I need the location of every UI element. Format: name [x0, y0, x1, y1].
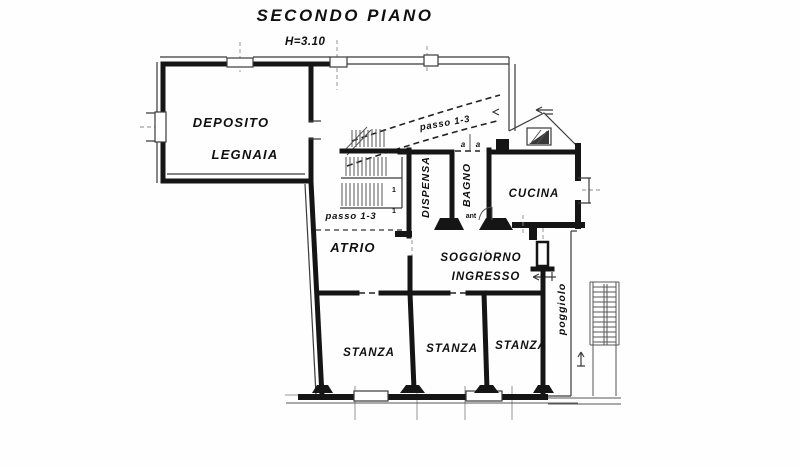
label-passo-lower: passo 1-3	[324, 211, 376, 222]
label-stanza-2: STANZA	[426, 343, 478, 355]
height-note: H=3.10	[285, 36, 326, 48]
stair-step-mark-1: 1	[392, 187, 396, 194]
kitchen-bay-roof	[509, 113, 578, 147]
label-bagno: BAGNO	[461, 163, 473, 207]
label-stanza-3: STANZA	[495, 340, 547, 352]
label-poggiolo: poggiolo	[556, 283, 568, 336]
label-atrio: ATRIO	[329, 240, 375, 255]
label-legnaia: LEGNAIA	[212, 147, 279, 162]
section-a-left: a	[461, 140, 466, 149]
floor-plan-page: SECONDO PIANO H=3.10	[0, 0, 800, 467]
section-a-right: a	[476, 140, 481, 149]
bottom-facade-wall	[286, 385, 578, 403]
floor-plan-drawing: SECONDO PIANO H=3.10	[0, 0, 800, 467]
label-cucina: CUCINA	[509, 188, 560, 200]
label-ingresso: INGRESSO	[452, 271, 521, 283]
label-soggiorno: SOGGIORNO	[440, 252, 521, 264]
internal-staircase: 1 1	[340, 127, 406, 215]
label-stanza-1: STANZA	[343, 347, 395, 359]
label-ant: ant	[466, 213, 477, 220]
section-marker: a a	[461, 134, 481, 151]
stair-step-mark-2: 1	[392, 208, 396, 215]
label-dispensa: DISPENSA	[420, 156, 432, 218]
page-title: SECONDO PIANO	[256, 6, 433, 25]
label-deposito: DEPOSITO	[193, 115, 270, 130]
